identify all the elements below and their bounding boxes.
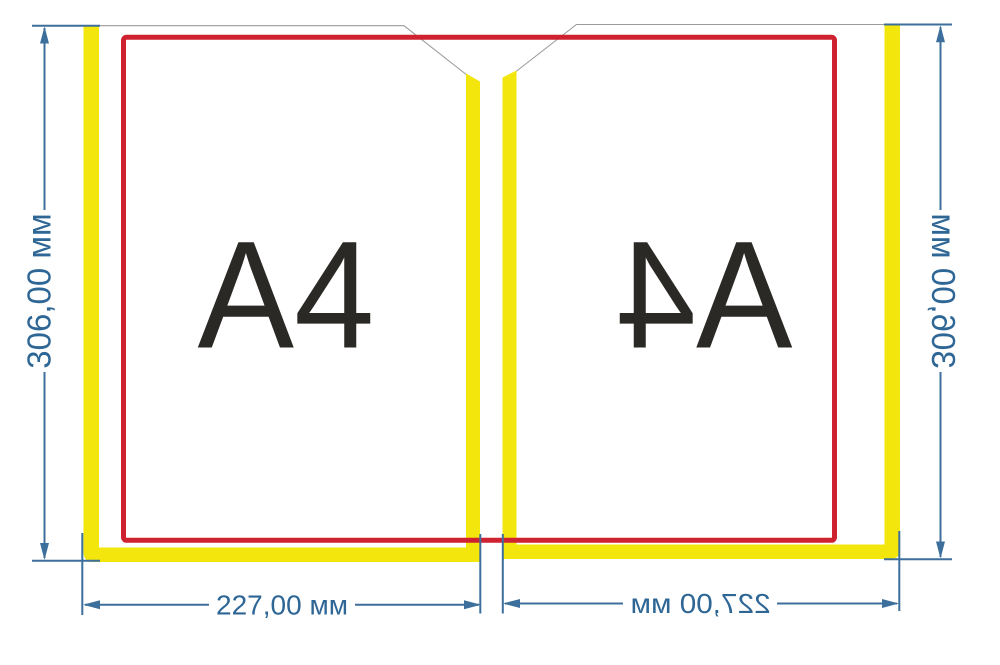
svg-text:306,00 мм: 306,00 мм [925,213,962,368]
svg-text:227,00 мм: 227,00 мм [216,590,348,621]
svg-text:227,00 мм: 227,00 мм [631,588,771,619]
svg-text:306,00 мм: 306,00 мм [21,213,58,368]
svg-text:А4: А4 [616,210,793,381]
svg-text:А4: А4 [198,210,375,381]
